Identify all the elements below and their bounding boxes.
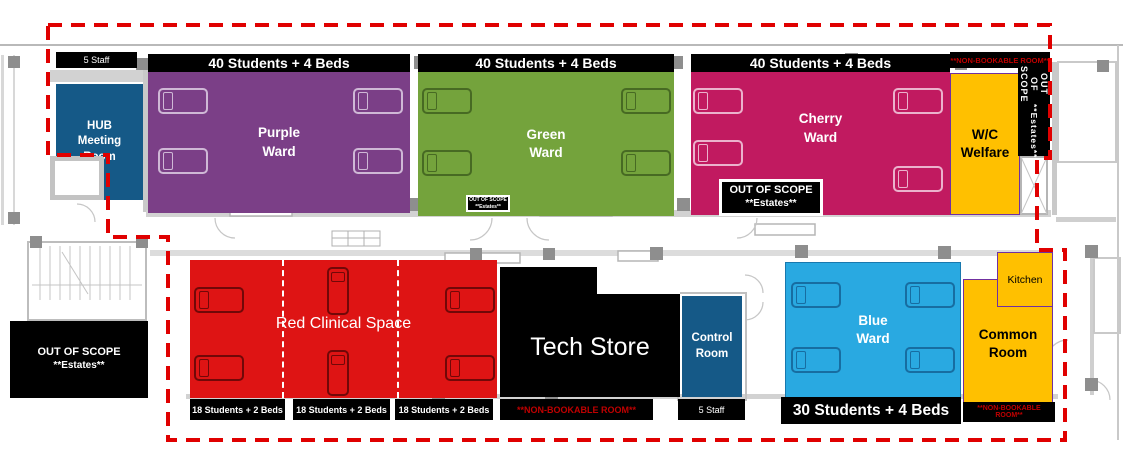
control-staff-label: 5 Staff bbox=[678, 399, 745, 420]
bed-icon bbox=[158, 148, 208, 174]
estates-vertical-box: OUT OF SCOPE **Estates** bbox=[1018, 68, 1050, 156]
bed-icon bbox=[621, 88, 671, 114]
hub-staff-label: 5 Staff bbox=[56, 52, 137, 68]
room-red-clinical: Red Clinical Space bbox=[190, 260, 497, 398]
green-ward-capacity: 40 Students + 4 Beds bbox=[418, 54, 674, 72]
kitchen-label: Kitchen bbox=[1007, 274, 1042, 286]
estates-left-box: OUT OF SCOPE **Estates** bbox=[10, 321, 148, 398]
red-section-label-3: 18 Students + 2 Beds bbox=[395, 399, 493, 420]
red-section-label-2: 18 Students + 2 Beds bbox=[293, 399, 390, 420]
wc-welfare-label: W/C Welfare bbox=[956, 126, 1014, 161]
bed-icon bbox=[791, 282, 841, 308]
room-purple-ward: Purple Ward bbox=[148, 72, 410, 213]
bed-icon bbox=[445, 355, 495, 381]
bed-icon bbox=[905, 282, 955, 308]
room-wc-welfare: W/C Welfare bbox=[950, 73, 1020, 215]
room-tech-store: Tech Store bbox=[500, 267, 680, 397]
common-nonbookable-note: **NON-BOOKABLE ROOM** bbox=[963, 402, 1055, 422]
bed-icon bbox=[621, 150, 671, 176]
bed-icon bbox=[327, 350, 349, 396]
blue-ward-capacity: 30 Students + 4 Beds bbox=[781, 397, 961, 424]
common-room-label: Common Room bbox=[964, 326, 1052, 361]
red-clinical-label: Red Clinical Space bbox=[190, 315, 497, 333]
bed-icon bbox=[905, 347, 955, 373]
estates-cherry-box: OUT OF SCOPE **Estates** bbox=[719, 179, 823, 216]
bed-icon bbox=[693, 88, 743, 114]
cherry-ward-capacity: 40 Students + 4 Beds bbox=[691, 54, 950, 72]
bed-icon bbox=[422, 150, 472, 176]
room-control: Control Room bbox=[682, 296, 742, 397]
room-green-ward: Green Ward bbox=[418, 72, 674, 216]
tech-store-nonbookable-note: **NON-BOOKABLE ROOM** bbox=[500, 399, 653, 420]
bed-icon bbox=[893, 88, 943, 114]
bed-icon bbox=[893, 166, 943, 192]
bed-icon bbox=[194, 355, 244, 381]
tech-store-label: Tech Store bbox=[500, 297, 680, 397]
bed-icon bbox=[158, 88, 208, 114]
stairwell-box bbox=[50, 156, 104, 200]
bed-icon bbox=[445, 287, 495, 313]
bed-icon bbox=[353, 88, 403, 114]
bed-icon bbox=[422, 88, 472, 114]
bed-icon bbox=[791, 347, 841, 373]
control-room-label: Control Room bbox=[687, 331, 737, 362]
estates-small-box: OUT OF SCOPE **Estates** bbox=[466, 195, 510, 212]
lift-icon bbox=[1020, 156, 1050, 216]
bed-icon bbox=[353, 148, 403, 174]
bed-icon bbox=[194, 287, 244, 313]
room-blue-ward: Blue Ward bbox=[785, 262, 961, 398]
tech-store-notch bbox=[597, 267, 680, 294]
bed-icon bbox=[327, 267, 349, 315]
red-section-label-1: 18 Students + 2 Beds bbox=[190, 399, 285, 420]
floor-plan: 5 Staff HUB Meeting Room 40 Students + 4… bbox=[0, 0, 1123, 458]
room-kitchen: Kitchen bbox=[997, 252, 1053, 307]
bed-icon bbox=[693, 140, 743, 166]
purple-ward-capacity: 40 Students + 4 Beds bbox=[148, 54, 410, 72]
